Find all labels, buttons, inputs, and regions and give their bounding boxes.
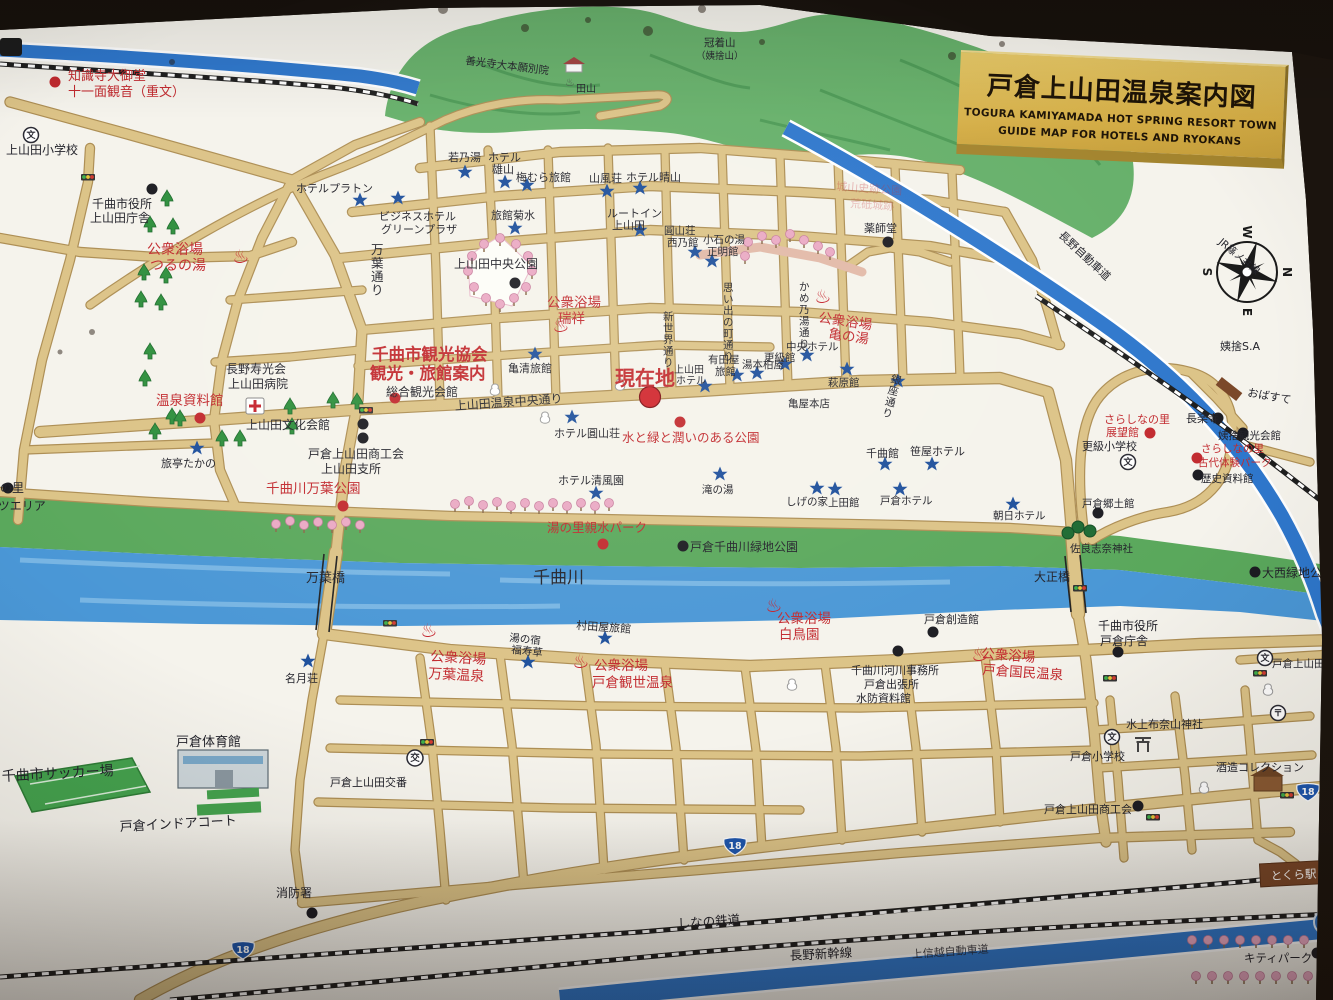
map-label: 観光・旅館案内: [370, 363, 486, 383]
map-label: 戸倉観世温泉: [592, 674, 673, 691]
map-label: 小石の湯: [703, 234, 745, 246]
map-label: ホテル晴山: [626, 171, 681, 184]
cherry-tree-icon: [535, 502, 544, 511]
map-label: 千曲市観光協会: [372, 344, 488, 364]
cherry-tree-icon: [465, 497, 474, 506]
map-label: 千曲館: [866, 446, 899, 460]
map-label: 湯の里親水パーク: [547, 520, 647, 535]
poi-black-dot: [678, 541, 689, 552]
poi-red-dot: [675, 417, 686, 428]
route18-number: 18: [728, 841, 742, 852]
signal-lamp: [1108, 676, 1112, 680]
map-label: 上山田文化会館: [246, 417, 330, 432]
map-label: 戸倉小学校: [1070, 749, 1125, 763]
map-label: 名月荘: [285, 671, 318, 685]
poi-black-dot: [893, 646, 904, 657]
temple-branch-building: [566, 64, 582, 72]
map-label: 西乃館: [667, 236, 699, 249]
dirt-speck: [58, 350, 63, 355]
map-label: 戸倉上山田交番: [330, 775, 407, 789]
map-label: 戸倉上山田商工会: [308, 446, 404, 461]
cherry-tree-icon: [758, 232, 767, 241]
signal-lamp: [1104, 676, 1108, 680]
map-label: 佐良志奈神社: [1070, 542, 1133, 555]
map-label: 上山田病院: [228, 376, 288, 391]
map-label: 白鳥園: [779, 627, 820, 643]
shrine-tree-icon: [1084, 525, 1096, 537]
cherry-tree-icon: [356, 521, 365, 530]
map-label: 梅むら旅館: [516, 170, 571, 184]
map-label: つるの湯: [150, 257, 206, 274]
poi-black-dot: [1113, 647, 1124, 658]
poi-red-dot: [338, 501, 349, 512]
school-icon-char: 文: [1259, 652, 1270, 664]
signal-lamp: [392, 621, 396, 625]
map-label: 戸倉千曲川緑地公園: [690, 539, 798, 554]
map-label: 旅館: [715, 365, 736, 378]
map-label: 戸倉創造館: [924, 612, 979, 626]
map-label: 田山: [576, 83, 596, 95]
onsen-icon: ♨: [571, 650, 591, 674]
cherry-tree-icon: [496, 234, 505, 243]
dirt-speck: [759, 39, 765, 45]
map-label: 思い出の町通り: [723, 282, 734, 363]
cherry-tree-icon: [300, 521, 309, 530]
cherry-tree-icon: [522, 283, 531, 292]
map-label: 水上布奈山神社: [1126, 717, 1203, 731]
map-label: 総合観光会館: [386, 384, 458, 399]
cherry-tree-icon: [577, 499, 586, 508]
cherry-tree-icon: [1304, 972, 1313, 981]
compass-letter-top: W: [1240, 225, 1254, 238]
poi-black-dot: [358, 433, 369, 444]
signal-lamp: [388, 621, 392, 625]
signal-lamp: [1262, 671, 1266, 675]
map-label: 戸倉ホテル: [880, 494, 933, 507]
map-label: 戸倉出張所: [864, 677, 919, 691]
map-label: ビジネスホテル: [379, 210, 456, 223]
cherry-tree-icon: [772, 236, 781, 245]
gourd-symbol: [787, 679, 796, 690]
map-label: さらしなの里: [1201, 443, 1264, 455]
onsen-icon-small: ♨: [565, 76, 575, 89]
dirt-speck: [698, 5, 706, 13]
poi-black-dot: [510, 278, 521, 289]
map-label: 滝の湯: [702, 484, 734, 496]
map-label: 冠着山: [704, 36, 736, 49]
poi-black-dot: [1133, 801, 1144, 812]
map-label: 千曲市役所: [1098, 618, 1158, 633]
map-label: 姨捨S.A: [1220, 339, 1260, 353]
map-label: 万葉橋: [306, 571, 345, 586]
signal-lamp: [1254, 671, 1258, 675]
cherry-tree-icon: [549, 499, 558, 508]
signal-lamp: [86, 175, 90, 179]
map-label: 正明館: [707, 245, 739, 258]
cherry-tree-icon: [1300, 936, 1309, 945]
gymnasium-door: [215, 770, 233, 788]
map-label: 新世界通り: [663, 310, 674, 369]
map-label: 知識寺大御堂: [68, 68, 146, 84]
map-label: 上山田中央公園: [454, 256, 538, 271]
route18-number: 18: [236, 945, 250, 956]
map-label: ホテル: [676, 375, 706, 387]
route18-number: 18: [1301, 787, 1315, 798]
compass-letter-left: S: [1200, 268, 1214, 277]
school-icon-char: 文: [1106, 731, 1117, 743]
map-label: ホテル圓山荘: [554, 427, 620, 440]
map-label: 湯本柏屋: [742, 358, 784, 371]
dirt-speck: [521, 24, 529, 32]
cherry-tree-icon: [314, 518, 323, 527]
signal-lamp: [1151, 815, 1155, 819]
map-label: 万葉温泉: [428, 665, 485, 685]
map-label: 瑞祥: [558, 311, 585, 327]
signal-lamp: [384, 621, 388, 625]
signal-lamp: [360, 408, 364, 412]
signal-lamp: [1289, 793, 1293, 797]
map-label: 公衆浴場: [777, 611, 831, 627]
map-label: 公衆浴場: [147, 242, 203, 258]
signal-lamp: [1082, 586, 1086, 590]
map-label: 歴史資料館: [1201, 472, 1254, 485]
map-label: 戸倉上山田商工会: [1044, 802, 1132, 816]
map-label: 戸倉庁舎: [1100, 633, 1148, 648]
cherry-tree-icon: [451, 500, 460, 509]
map-label: 千曲川河川事務所: [851, 663, 939, 677]
map-label: 笹屋ホテル: [910, 445, 965, 458]
map-label: 旅館菊水: [491, 208, 535, 222]
poi-red-dot: [1145, 428, 1156, 439]
signal-lamp: [1147, 815, 1151, 819]
map-label: 十一面観音（重文）: [68, 84, 185, 100]
dirt-speck: [948, 52, 956, 60]
signal-lamp: [425, 740, 429, 744]
map-label: 公衆浴場: [547, 295, 601, 311]
cherry-tree-icon: [510, 294, 519, 303]
onsen-icon: ♨: [419, 619, 439, 643]
poi-black-dot: [1250, 567, 1261, 578]
gymnasium-windows: [183, 756, 263, 764]
cherry-tree-icon: [1284, 936, 1293, 945]
map-label: 薬師堂: [864, 222, 897, 235]
map-label: 万葉の里: [0, 481, 24, 495]
gourd-symbol: [490, 384, 499, 395]
cherry-tree-icon: [272, 520, 281, 529]
map-label: しげの家: [786, 495, 828, 508]
cherry-tree-icon: [1204, 936, 1213, 945]
poi-red-dot: [50, 77, 61, 88]
map-label: 上山田: [612, 219, 645, 232]
cherry-tree-icon: [1220, 936, 1229, 945]
map-label: 萩原館: [828, 376, 860, 389]
signal-lamp: [1258, 671, 1262, 675]
map-label: 公衆浴場: [594, 658, 648, 674]
signal-lamp: [429, 740, 433, 744]
cherry-tree-icon: [1240, 972, 1249, 981]
sake-collection-building: [1254, 776, 1282, 791]
dirt-speck: [643, 26, 653, 36]
cherry-tree-icon: [1224, 972, 1233, 981]
map-label: 消防署: [276, 885, 312, 900]
map-label: 圓山荘: [664, 225, 696, 237]
map-label: 上山田小学校: [6, 142, 78, 157]
map-label: 姨捨観光会館: [1218, 429, 1281, 442]
cherry-tree-icon: [496, 300, 505, 309]
map-label: スポーツエリア: [0, 499, 46, 513]
cherry-tree-icon: [493, 498, 502, 507]
signal-lamp: [1112, 676, 1116, 680]
cherry-tree-icon: [741, 252, 750, 261]
map-label: 朝日ホテル: [993, 510, 1046, 522]
cherry-tree-icon: [826, 248, 835, 257]
map-label: 山風荘: [589, 172, 622, 185]
post-office-icon-char: 〒: [1273, 709, 1282, 719]
map-label: 水と緑と潤いのある公園: [622, 430, 760, 445]
signal-lamp: [1074, 586, 1078, 590]
gourd-symbol: [540, 412, 549, 423]
current-location-label: 現在地: [615, 366, 675, 390]
dirt-speck: [999, 41, 1005, 47]
gourd-symbol: [1263, 684, 1272, 695]
map-label: （姨捨山）: [696, 50, 744, 62]
map-label: 温泉資料館: [156, 392, 224, 409]
cherry-tree-icon: [1208, 972, 1217, 981]
signal-lamp: [1281, 793, 1285, 797]
poi-black-dot: [147, 184, 158, 195]
signal-lamp: [82, 175, 86, 179]
map-label: 旅亭たかの: [161, 456, 216, 470]
cherry-tree-icon: [521, 499, 530, 508]
map-label: 有田屋: [708, 353, 740, 366]
photographed-guide-map-sign: ♨♨♨♨♨♨♨♨文文文文交〒181818WNES知識寺大御堂十一面観音（重文）上…: [0, 0, 1333, 1000]
cherry-tree-icon: [512, 240, 521, 249]
cherry-tree-icon: [342, 518, 351, 527]
map-label: 展望館: [1106, 425, 1139, 439]
cherry-tree-icon: [482, 294, 491, 303]
cherry-tree-icon: [814, 242, 823, 251]
cherry-tree-icon: [1268, 936, 1277, 945]
dirt-speck: [89, 329, 95, 335]
map-label: 古代体験パーク: [1198, 456, 1272, 469]
cherry-tree-icon: [1192, 972, 1201, 981]
school-icon-char: 文: [1122, 456, 1133, 468]
shrine-tree-icon: [1062, 527, 1074, 539]
onsen-icon: ♨: [231, 245, 251, 269]
cherry-tree-icon: [480, 240, 489, 249]
cherry-tree-icon: [1256, 972, 1265, 981]
cherry-tree-icon: [563, 502, 572, 511]
map-label: ホテルプラトン: [296, 182, 373, 195]
map-label: 公衆浴場: [430, 649, 487, 668]
map-label: 千曲川万葉公園: [266, 481, 361, 497]
map-label: キティパーク: [1244, 951, 1312, 965]
map-label: 上山田: [674, 364, 704, 376]
signal-lamp: [1078, 586, 1082, 590]
cherry-tree-icon: [1272, 972, 1281, 981]
cherry-tree-icon: [1288, 972, 1297, 981]
cherry-tree-icon: [1236, 936, 1245, 945]
map-label: ホテル清風園: [558, 474, 624, 487]
signal-lamp: [1285, 793, 1289, 797]
signal-lamp: [421, 740, 425, 744]
title-plate: 戸倉上山田温泉案内図 TOGURA KAMIYAMADA HOT SPRING …: [956, 50, 1288, 169]
police-box-icon-char: 交: [410, 752, 420, 764]
cherry-tree-icon: [1188, 936, 1197, 945]
poi-black-dot: [307, 908, 318, 919]
gourd-symbol: [1199, 782, 1208, 793]
signal-lamp: [1155, 815, 1159, 819]
map-label: 千曲市役所: [92, 196, 152, 211]
map-label: 戸倉体育館: [176, 734, 241, 750]
map-label: 水防資料館: [856, 691, 911, 705]
map-label: さらしなの里: [1104, 413, 1170, 426]
signal-lamp: [368, 408, 372, 412]
poi-black-dot: [928, 627, 939, 638]
cherry-tree-icon: [286, 517, 295, 526]
cherry-tree-icon: [800, 236, 809, 245]
school-icon-char: 文: [25, 129, 36, 141]
cherry-tree-icon: [1252, 936, 1261, 945]
poi-red-dot: [598, 539, 609, 550]
cherry-tree-icon: [507, 502, 516, 511]
map-label: 若乃湯: [448, 151, 481, 164]
map-label: 大正橋: [1034, 570, 1070, 584]
map-label: 亀屋本店: [788, 397, 830, 410]
map-label: 長楽寺: [1186, 412, 1219, 425]
map-label: 万葉通り: [371, 242, 384, 298]
map-label: 戸倉郷土館: [1082, 497, 1135, 510]
onsen-icon: ♨: [813, 285, 833, 309]
poi-black-dot: [358, 419, 369, 430]
signal-lamp: [90, 175, 94, 179]
map-label: 酒造コレクション: [1216, 760, 1304, 774]
dirt-speck: [169, 59, 175, 65]
cherry-tree-icon: [786, 230, 795, 239]
cherry-tree-icon: [470, 283, 479, 292]
map-label: 千曲川: [533, 568, 584, 588]
compass-letter-right: N: [1280, 267, 1294, 277]
map-label: 上山田庁舎: [90, 211, 150, 225]
cherry-tree-icon: [328, 521, 337, 530]
map-label: 上田館: [828, 496, 860, 509]
cherry-tree-icon: [591, 502, 600, 511]
map-label: 更級小学校: [1082, 439, 1137, 453]
togura-station-label: とくら駅: [1270, 867, 1317, 883]
sign-fragment: [0, 38, 22, 56]
map-label: 雄山: [492, 162, 514, 176]
map-label: 亀清旅館: [508, 361, 552, 375]
map-label: 上山田支所: [321, 462, 381, 476]
cherry-tree-icon: [605, 499, 614, 508]
map-label: グリーンプラザ: [381, 222, 457, 236]
poi-black-dot: [883, 237, 894, 248]
poi-red-dot: [195, 413, 206, 424]
map-label: 長野寿光会: [226, 362, 286, 376]
signal-lamp: [364, 408, 368, 412]
compass-letter-bottom: E: [1240, 308, 1254, 316]
dirt-speck: [585, 17, 591, 23]
cherry-tree-icon: [479, 501, 488, 510]
